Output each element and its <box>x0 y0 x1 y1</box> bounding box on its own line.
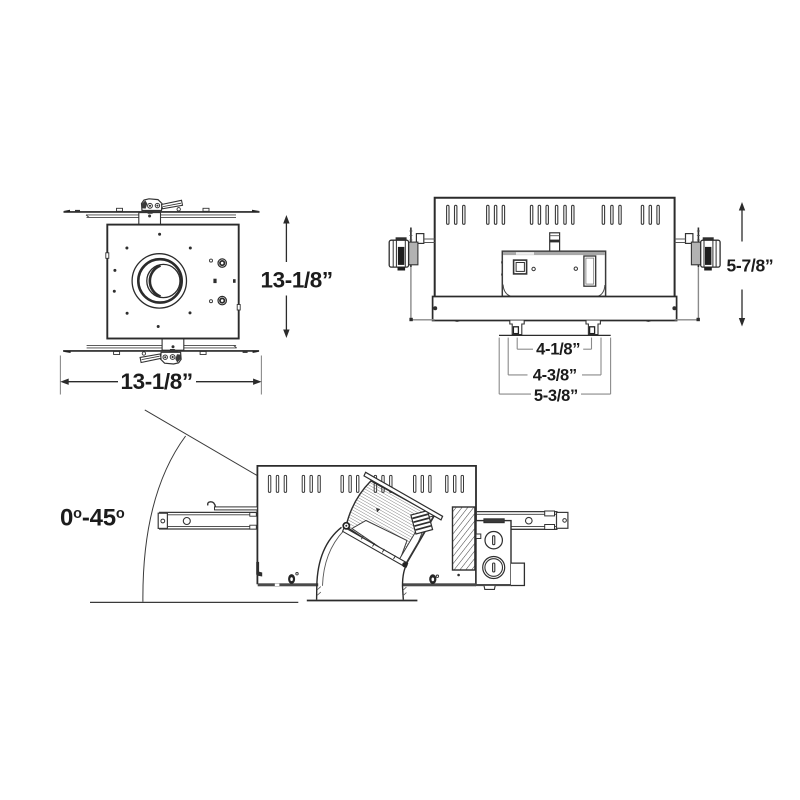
svg-text:4-1/8”: 4-1/8” <box>536 341 580 359</box>
svg-text:5-3/8”: 5-3/8” <box>534 387 578 405</box>
svg-text:13-1/8”: 13-1/8” <box>261 268 333 293</box>
svg-text:13-1/8”: 13-1/8” <box>121 369 193 394</box>
svg-text:4-3/8”: 4-3/8” <box>533 366 577 384</box>
svg-text:0o-45o: 0o-45o <box>60 505 125 532</box>
svg-text:5-7/8”: 5-7/8” <box>727 255 774 275</box>
